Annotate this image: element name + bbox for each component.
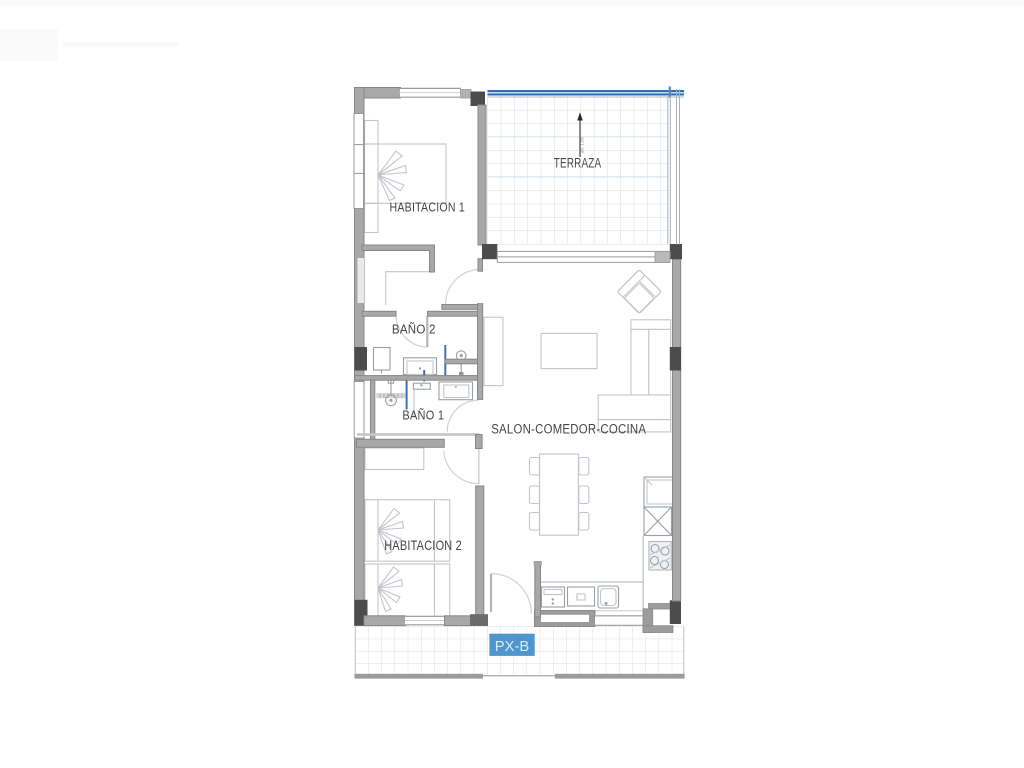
svg-text:alt. 1,05: alt. 1,05 — [580, 136, 585, 153]
svg-text:SALON-COMEDOR-COCINA: SALON-COMEDOR-COCINA — [491, 422, 646, 437]
svg-text:HABITACION 2: HABITACION 2 — [384, 537, 462, 553]
svg-text:BAÑO 2: BAÑO 2 — [392, 322, 436, 337]
svg-text:BAÑO 1: BAÑO 1 — [402, 408, 444, 423]
svg-text:TERRAZA: TERRAZA — [554, 155, 602, 171]
svg-text:PX-B: PX-B — [495, 638, 529, 655]
svg-text:HABITACION 1: HABITACION 1 — [390, 200, 466, 215]
